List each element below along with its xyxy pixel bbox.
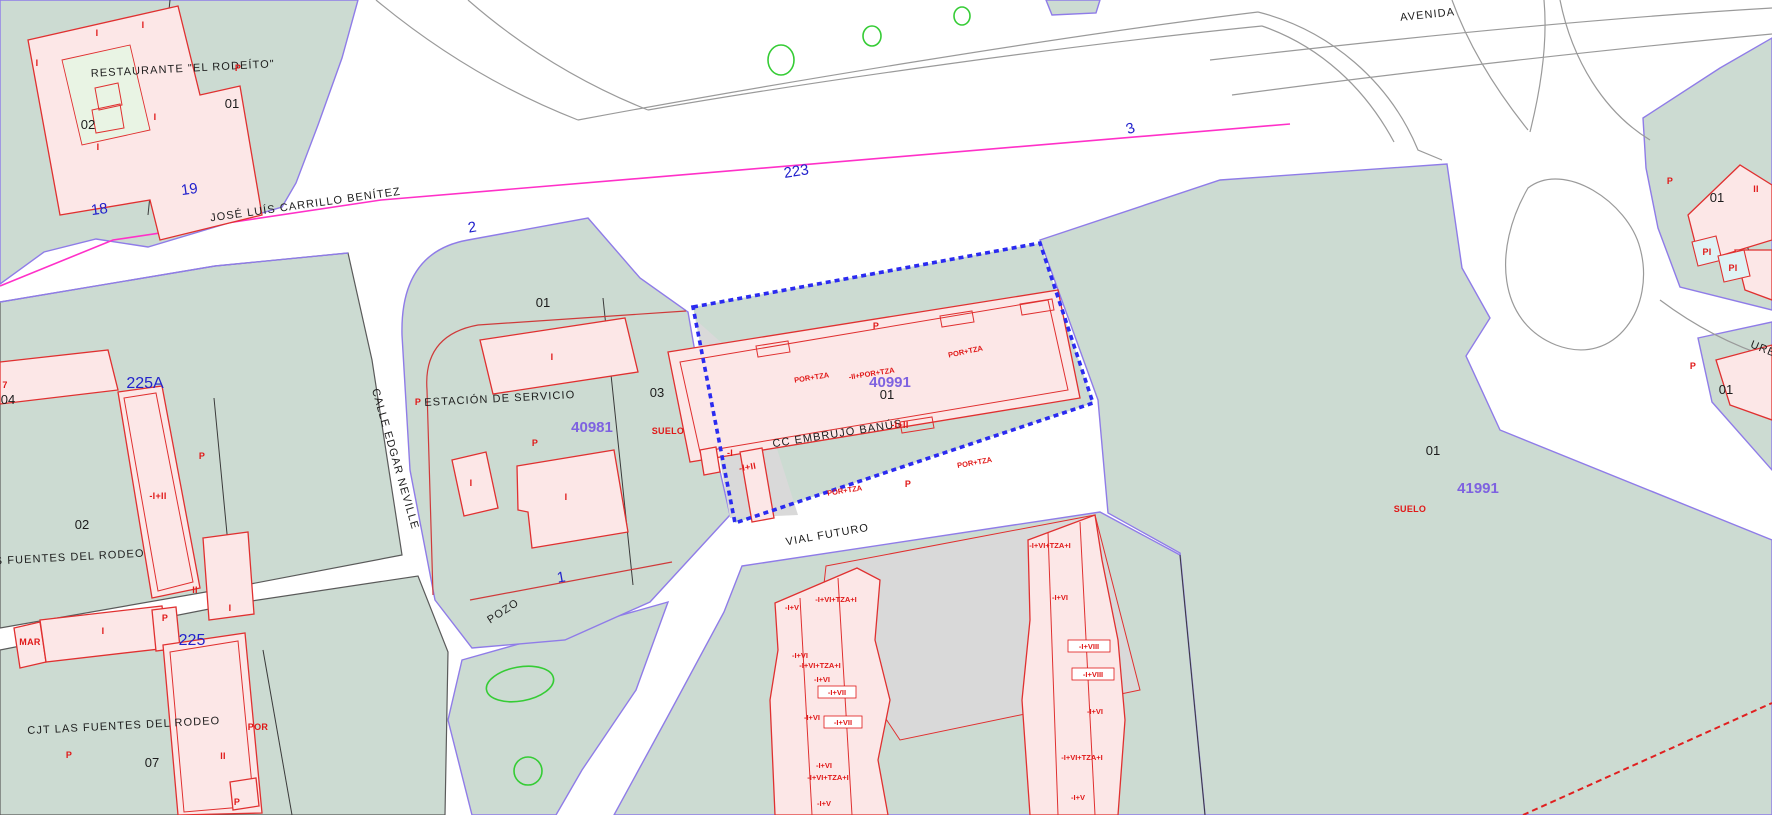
street-number: 225A (126, 375, 164, 392)
height-label: -I+VI+TZA+I (799, 661, 840, 670)
parcel-number: 02 (81, 117, 95, 132)
p-label: P (532, 438, 538, 448)
height-label: -I+VII (828, 688, 846, 697)
floors-label: II (220, 751, 226, 761)
parcel-number: 01 (536, 295, 550, 310)
p-label: P (873, 321, 879, 331)
p-label: P (66, 750, 72, 760)
cadastral-ref-41991: 41991 (1457, 480, 1499, 497)
height-label: -I+VI+TZA+I (1061, 753, 1102, 762)
street-label-vial-futuro: VIAL FUTURO (785, 522, 870, 548)
parcel-number: 04 (1, 392, 15, 407)
parcel-number: 03 (650, 385, 664, 400)
parcel-number: 01 (1710, 190, 1724, 205)
red-number: 7 (2, 380, 7, 390)
curb (376, 0, 578, 120)
curb (648, 26, 1262, 110)
curb (1452, 0, 1528, 130)
floors-label: -I+II (149, 491, 166, 501)
mar-label: MAR (19, 637, 41, 647)
floors-label: I (154, 112, 157, 122)
height-label: -I+VI (1052, 593, 1068, 602)
pool-label: PI (1728, 263, 1737, 273)
height-label: -I+VI (816, 761, 832, 770)
building-gas-main[interactable] (517, 450, 628, 548)
building-annex[interactable] (700, 447, 720, 475)
floors-label: I (36, 58, 39, 68)
street-number: 19 (180, 180, 199, 199)
parcel-number: 07 (145, 755, 159, 770)
tree-outline (954, 7, 970, 25)
height-label: -I+VI (804, 713, 820, 722)
p-label: P (234, 797, 240, 807)
floors-label: I (551, 352, 554, 362)
height-label: -I+V (785, 603, 799, 612)
parcel-top-wedge[interactable] (1046, 0, 1100, 15)
height-label: -I+V (1071, 793, 1085, 802)
street-number: 225 (179, 632, 206, 649)
floors-label: I (470, 478, 473, 488)
por-label: POR (248, 722, 269, 732)
height-label: -I+VI+TZA+I (1029, 541, 1070, 550)
suelo-label: SUELO (1394, 504, 1427, 514)
street-number: 2 (467, 218, 478, 236)
p-label: P (235, 63, 241, 73)
floors-label: II (192, 585, 198, 595)
floors-label: I (102, 626, 105, 636)
roundabout-island (1506, 179, 1644, 350)
height-label: -I+VI (814, 675, 830, 684)
pool-label: PI (1702, 247, 1711, 257)
floors-label: I (229, 603, 232, 613)
curb (1530, 0, 1545, 132)
street-label-avenida: AVENIDA (1400, 6, 1456, 24)
tree-outline (863, 26, 881, 46)
portza-label: POR+TZA (956, 455, 993, 470)
floors-label: I (97, 142, 100, 152)
p-label: P (1690, 361, 1696, 371)
height-label: -I+VII (834, 718, 852, 727)
height-label: -I+VI+TZA+I (807, 773, 848, 782)
floors-label: -I+II (891, 420, 908, 430)
floors-label: I (96, 28, 99, 38)
suelo-label: SUELO (652, 426, 685, 436)
curb-avenida (1232, 34, 1772, 95)
curb-avenida (1210, 8, 1772, 60)
floors-label: -I (727, 448, 733, 458)
street-number: 3 (1124, 119, 1138, 138)
p-label: P (415, 397, 421, 407)
parcel-number: 01 (1426, 443, 1440, 458)
height-label: -I+VIII (1083, 670, 1103, 679)
curb (1560, 0, 1650, 140)
curb (1258, 12, 1442, 160)
height-label: -I+VI (1087, 707, 1103, 716)
curb (468, 0, 648, 110)
floors-label: I (142, 20, 145, 30)
street-number: 18 (90, 200, 109, 219)
parcel-fuentes-02[interactable] (0, 253, 402, 628)
floors-label: I (565, 492, 568, 502)
tree-outline (768, 45, 794, 75)
parcel-number: 02 (75, 517, 89, 532)
height-label: -I+VIII (1079, 642, 1099, 651)
street-number: 223 (783, 161, 810, 182)
parcel-number: 01 (225, 96, 239, 111)
height-label: -I+V (817, 799, 831, 808)
p-label: P (905, 479, 911, 489)
cadastral-map[interactable]: RESTAURANTE "EL RODEÍTO" JOSÉ LUÍS CARRI… (0, 0, 1772, 815)
p-label: P (199, 451, 205, 461)
cadastral-ref-40981: 40981 (571, 419, 613, 436)
height-label: -I+VI (792, 651, 808, 660)
height-label: -I+VI+TZA+I (815, 595, 856, 604)
p-label: P (1667, 176, 1673, 186)
parcel-number: 01 (1719, 382, 1733, 397)
p-label: P (162, 613, 168, 623)
floors-label: II (1753, 184, 1759, 194)
curb (578, 12, 1258, 120)
